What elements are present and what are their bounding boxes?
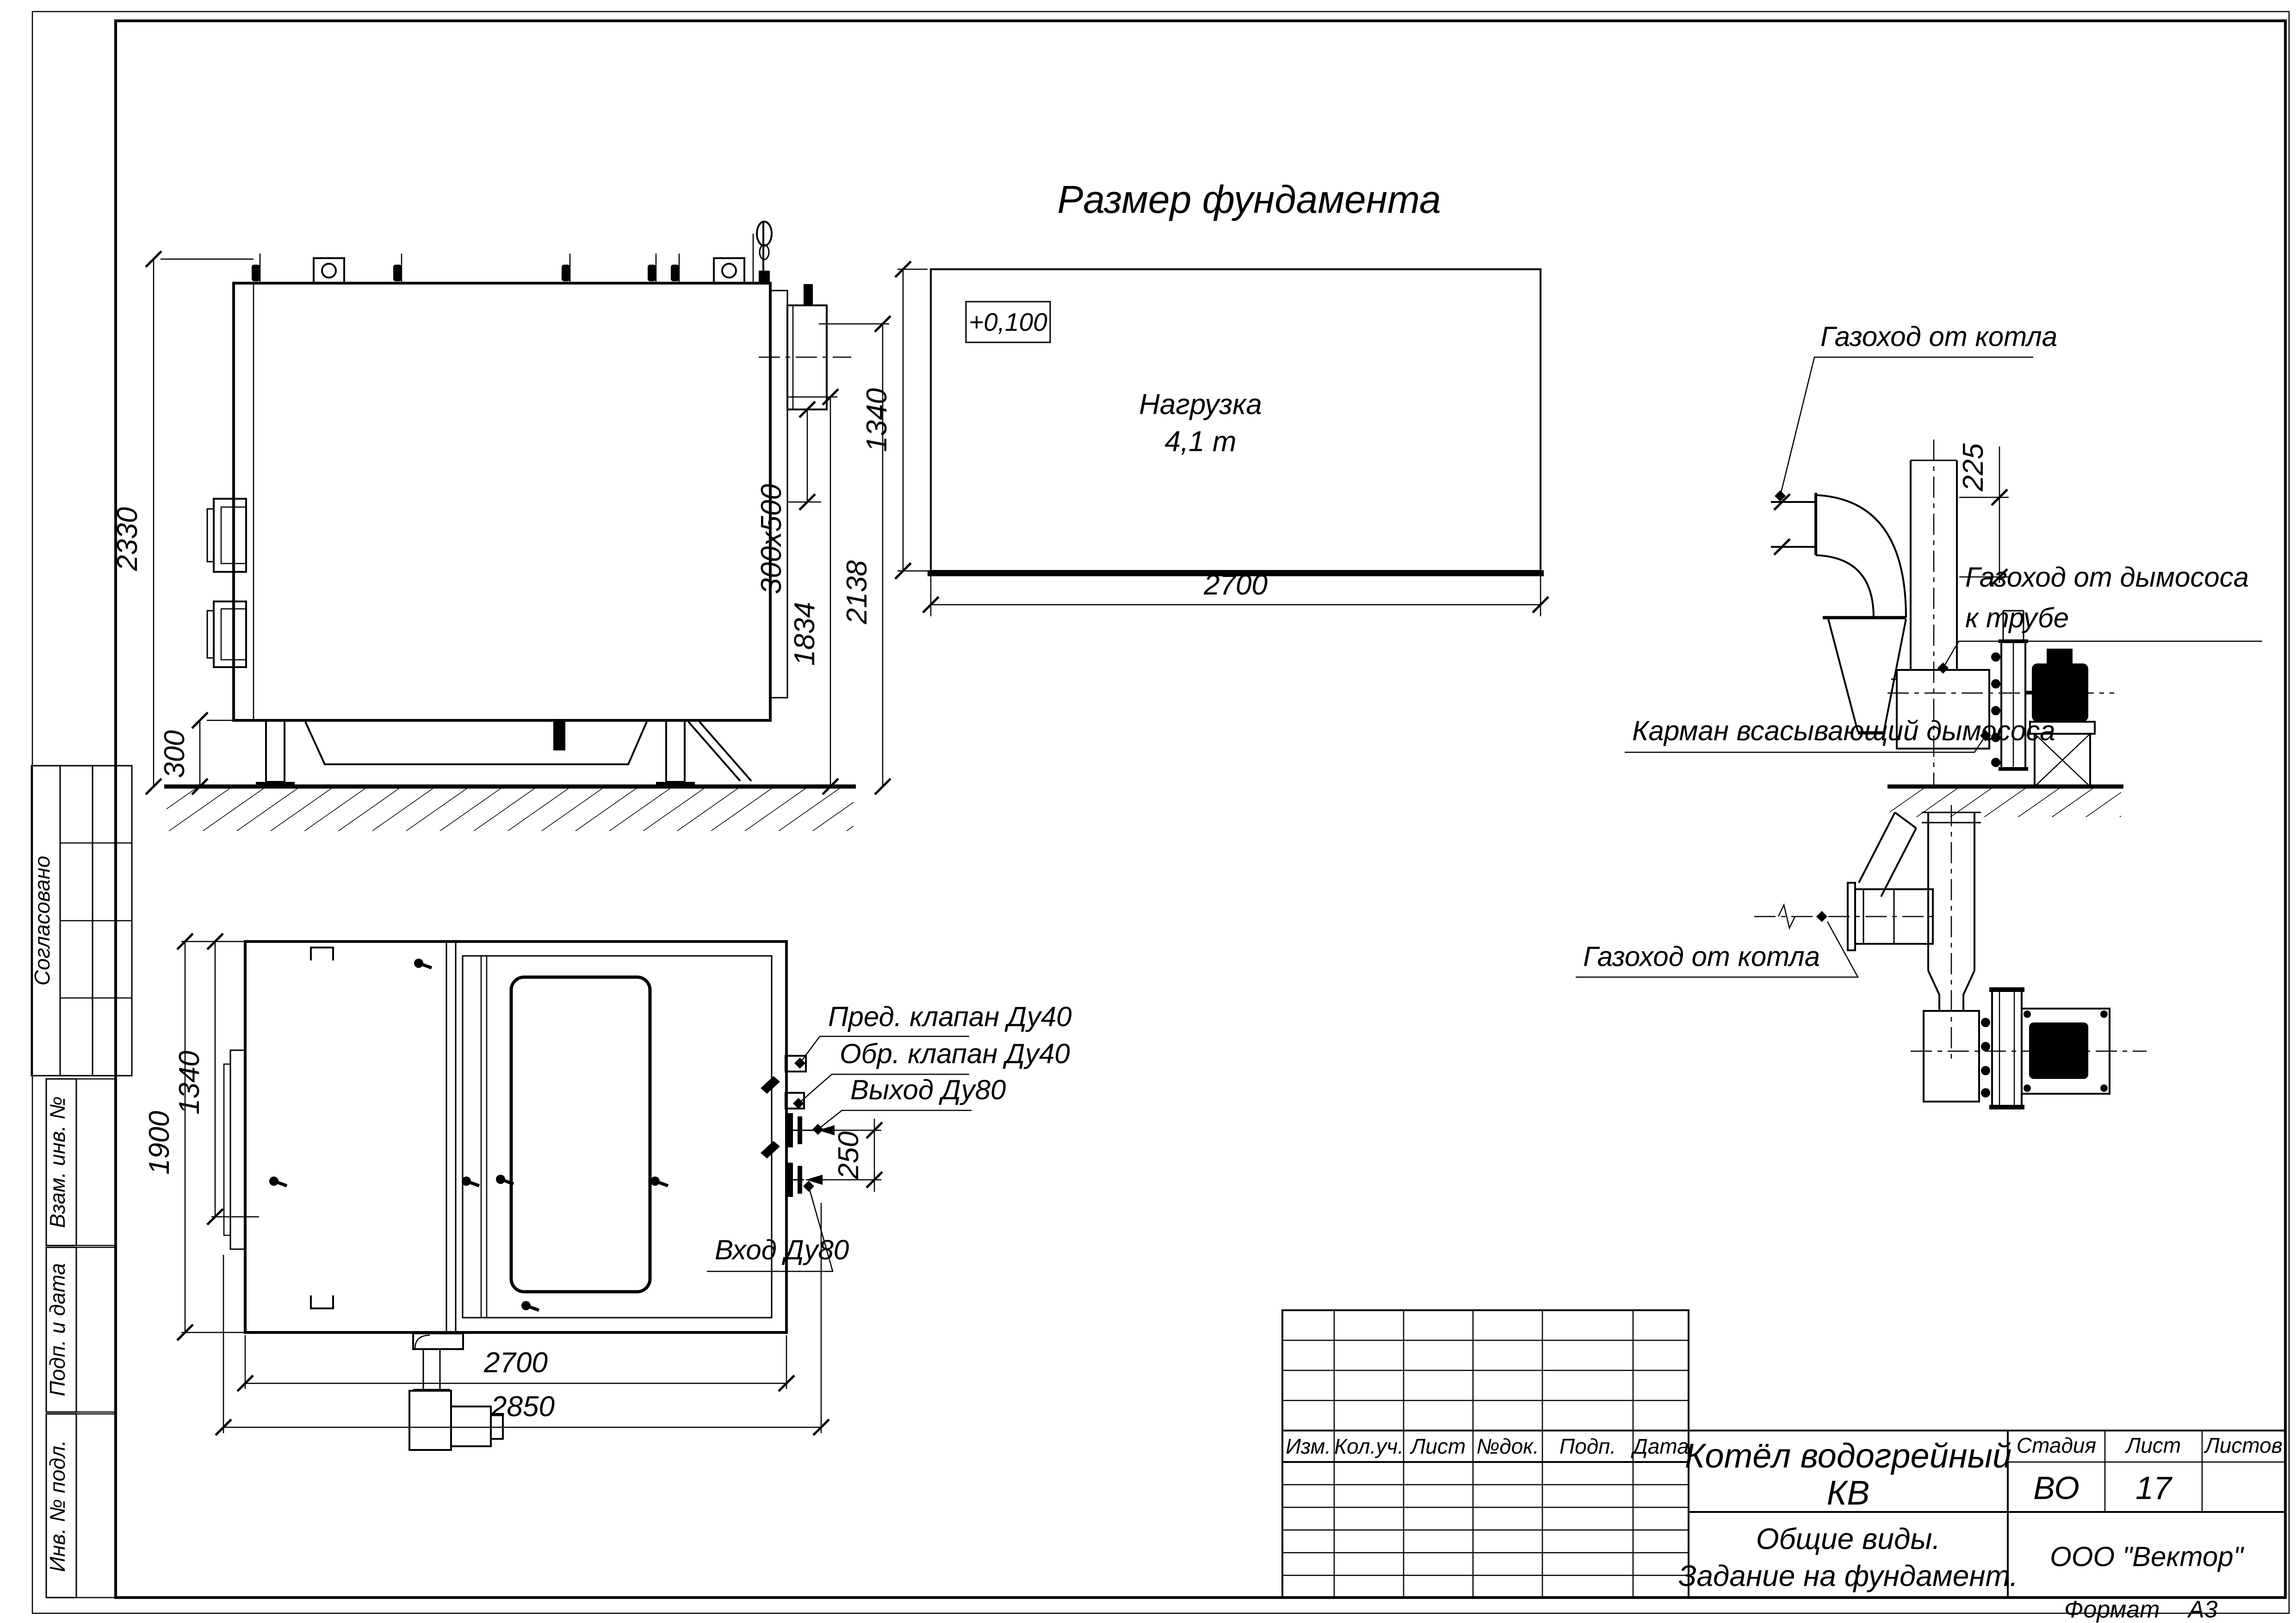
ground-hatch — [167, 788, 854, 831]
label-safety-valve: Пред. клапан Ду40 — [828, 1001, 1072, 1032]
load-label-1: Нагрузка — [1139, 389, 1262, 421]
label-outlet: Выход Ду80 — [850, 1074, 1006, 1105]
drawing-sheet: Согласовано Взам. инв. № Подп. и дата Ин… — [0, 0, 2296, 1623]
dim-1340: 1340 — [173, 1051, 205, 1115]
dim-foundation-1340: 1340 — [861, 388, 893, 452]
foundation-plan: +0,100 Нагрузка 4,1 т 2700 1340 — [861, 261, 1548, 616]
sheet-value: 17 — [2135, 1470, 2173, 1506]
label-duct-to-stack-1: Газоход от дымососа — [1965, 562, 2249, 593]
side-flanges — [207, 499, 246, 667]
dim-225: 225 — [1957, 443, 1989, 492]
format-value: А3 — [2187, 1596, 2218, 1623]
dim-300: 300 — [159, 730, 191, 778]
dim-1900: 1900 — [143, 1111, 175, 1175]
stamp-podp-label: Подп. и дата — [45, 1263, 69, 1396]
lifting-lugs — [314, 258, 744, 283]
rev-col-koluch: Кол.уч. — [1334, 1434, 1404, 1458]
rev-col-podp: Подп. — [1560, 1434, 1616, 1458]
rev-col-list: Лист — [1410, 1434, 1466, 1458]
stage-header: Стадия — [2017, 1433, 2096, 1457]
dim-2850: 2850 — [490, 1391, 555, 1423]
dim-2138: 2138 — [841, 560, 873, 625]
sheets-header: Листов — [2203, 1433, 2283, 1457]
margin-stamp-vzam: Взам. инв. № — [45, 1079, 116, 1245]
boiler-side-view: 2330 300 300х500 1834 2138 — [111, 222, 891, 831]
dim-foundation-2700: 2700 — [1203, 569, 1268, 601]
stamp-agreed-label: Согласовано — [30, 856, 54, 986]
rev-col-data: Дата — [1630, 1434, 1689, 1458]
page-title: Размер фундамента — [1057, 178, 1441, 221]
label-duct-plan-from-boiler: Газоход от котла — [1583, 941, 1820, 972]
format-label: Формат — [2064, 1596, 2160, 1623]
company-name: ООО "Вектор" — [2050, 1541, 2244, 1572]
subtitle-line2: Задание на фундамент. — [1678, 1559, 2018, 1592]
doc-title-line1: Котёл водогрейный — [1685, 1437, 2011, 1475]
dim-1834: 1834 — [789, 602, 821, 666]
label-inlet: Вход Ду80 — [715, 1234, 849, 1265]
gas-duct-plan-view: Газоход от котла — [1576, 805, 2147, 1109]
engineering-drawing: Согласовано Взам. инв. № Подп. и дата Ин… — [0, 0, 2296, 1623]
sheet-header: Лист — [2125, 1433, 2181, 1457]
elevation-mark: +0,100 — [969, 308, 1047, 336]
label-suction-pocket: Карман всасывающий дымососа — [1632, 715, 2055, 746]
smoke-exhauster-side — [1888, 611, 2114, 787]
smoke-exhauster-plan — [1911, 987, 2147, 1109]
label-duct-to-stack-2: к трубе — [1965, 602, 2069, 633]
dim-2330: 2330 — [111, 507, 143, 571]
dim-250: 250 — [833, 1131, 865, 1179]
side-view-dimensions: 2330 300 300х500 1834 2138 — [111, 251, 891, 794]
title-block: Изм. Кол.уч. Лист №док. Подп. Дата Котёл… — [1282, 1310, 2285, 1623]
stamp-inv-label: Инв. № подл. — [45, 1440, 69, 1572]
load-label-2: 4,1 т — [1164, 426, 1236, 458]
stage-value: ВО — [2033, 1470, 2079, 1506]
margin-stamp-podp: Подп. и дата — [45, 1247, 116, 1412]
gas-duct-side-view: Газоход от котла — [1625, 321, 2262, 817]
rev-col-ndok: №док. — [1476, 1434, 1539, 1458]
subtitle-line1: Общие виды. — [1756, 1522, 1940, 1555]
label-check-valve: Обр. клапан Ду40 — [840, 1038, 1070, 1069]
plan-bolts — [269, 959, 668, 1310]
rev-col-izm: Изм. — [1286, 1434, 1331, 1458]
margin-stamp-inv: Инв. № подл. — [45, 1414, 116, 1598]
support-frame — [256, 720, 751, 787]
dim-plan-2700: 2700 — [483, 1347, 548, 1379]
boiler-plan-view: Пред. клапан Ду40 Обр. клапан Ду40 Выход… — [143, 934, 1072, 1450]
dim-300x500: 300х500 — [755, 484, 787, 594]
safety-valve-assembly — [753, 222, 772, 284]
label-duct-from-boiler: Газоход от котла — [1820, 321, 2057, 352]
stamp-vzam-label: Взам. инв. № — [45, 1096, 69, 1228]
doc-title-line2: КВ — [1827, 1474, 1870, 1512]
